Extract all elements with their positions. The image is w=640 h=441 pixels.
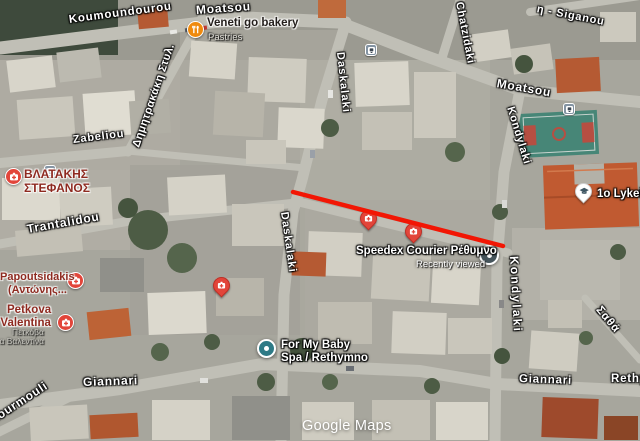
poi-label-for-my-baby-line1[interactable]: For My Baby	[281, 339, 350, 351]
poi-label-vlastakis-line1[interactable]: ΒΛΑΤΑΚΗΣ	[24, 167, 88, 181]
poi-status-recently-viewed: Recently viewed	[416, 259, 485, 270]
poi-label-for-my-baby-line2[interactable]: Spa / Rethymno	[281, 352, 368, 364]
first-aid-glyph	[409, 227, 418, 236]
street-label-giannari: Giannari	[83, 373, 139, 389]
street-label-giannari: Giannari	[519, 373, 572, 387]
poi-label-petkova-line1[interactable]: Petkova	[7, 304, 51, 316]
first-aid-glyph	[61, 318, 71, 328]
first-aid-glyph	[9, 172, 19, 182]
fork-knife-glyph	[191, 25, 200, 34]
restaurant-icon[interactable]	[187, 21, 204, 38]
visited-place-icon[interactable]	[257, 339, 276, 358]
poi-label-papoutsidakis-line2[interactable]: (Αντώνης...	[8, 284, 67, 296]
bus-icon	[566, 106, 573, 113]
poi-label-veneti-go-bakery[interactable]: Veneti go bakery	[207, 17, 298, 29]
medical-icon[interactable]	[57, 314, 74, 331]
transit-stop-icon[interactable]	[563, 103, 575, 115]
poi-label-1o-lykeio[interactable]: 1o Lykeio	[597, 188, 640, 200]
bus-icon	[368, 47, 375, 54]
first-aid-glyph	[217, 281, 226, 290]
graduation-cap-glyph	[579, 187, 589, 197]
poi-label-papoutsidakis-line1[interactable]: Papoutsidakis	[0, 271, 75, 283]
poi-label-petkova-alt2: ντα Βαλεντίνα	[0, 336, 44, 346]
poi-category-veneti: Pastries	[208, 32, 242, 43]
map-canvas[interactable]: Koumoundourou Moatsou Δημητρακάκη Στυλ. …	[0, 0, 640, 441]
google-maps-watermark[interactable]: Google Maps	[302, 418, 392, 434]
poi-label-speedex-courier[interactable]: Speedex Courier Ρέθυμνο	[356, 245, 497, 257]
poi-label-vlastakis-line2[interactable]: ΣΤΕΦΑΝΟΣ	[24, 181, 90, 195]
street-label-rethymno: Rethymno	[611, 373, 640, 385]
transit-stop-icon[interactable]	[365, 44, 377, 56]
first-aid-glyph	[364, 214, 373, 223]
medical-icon[interactable]	[5, 168, 22, 185]
